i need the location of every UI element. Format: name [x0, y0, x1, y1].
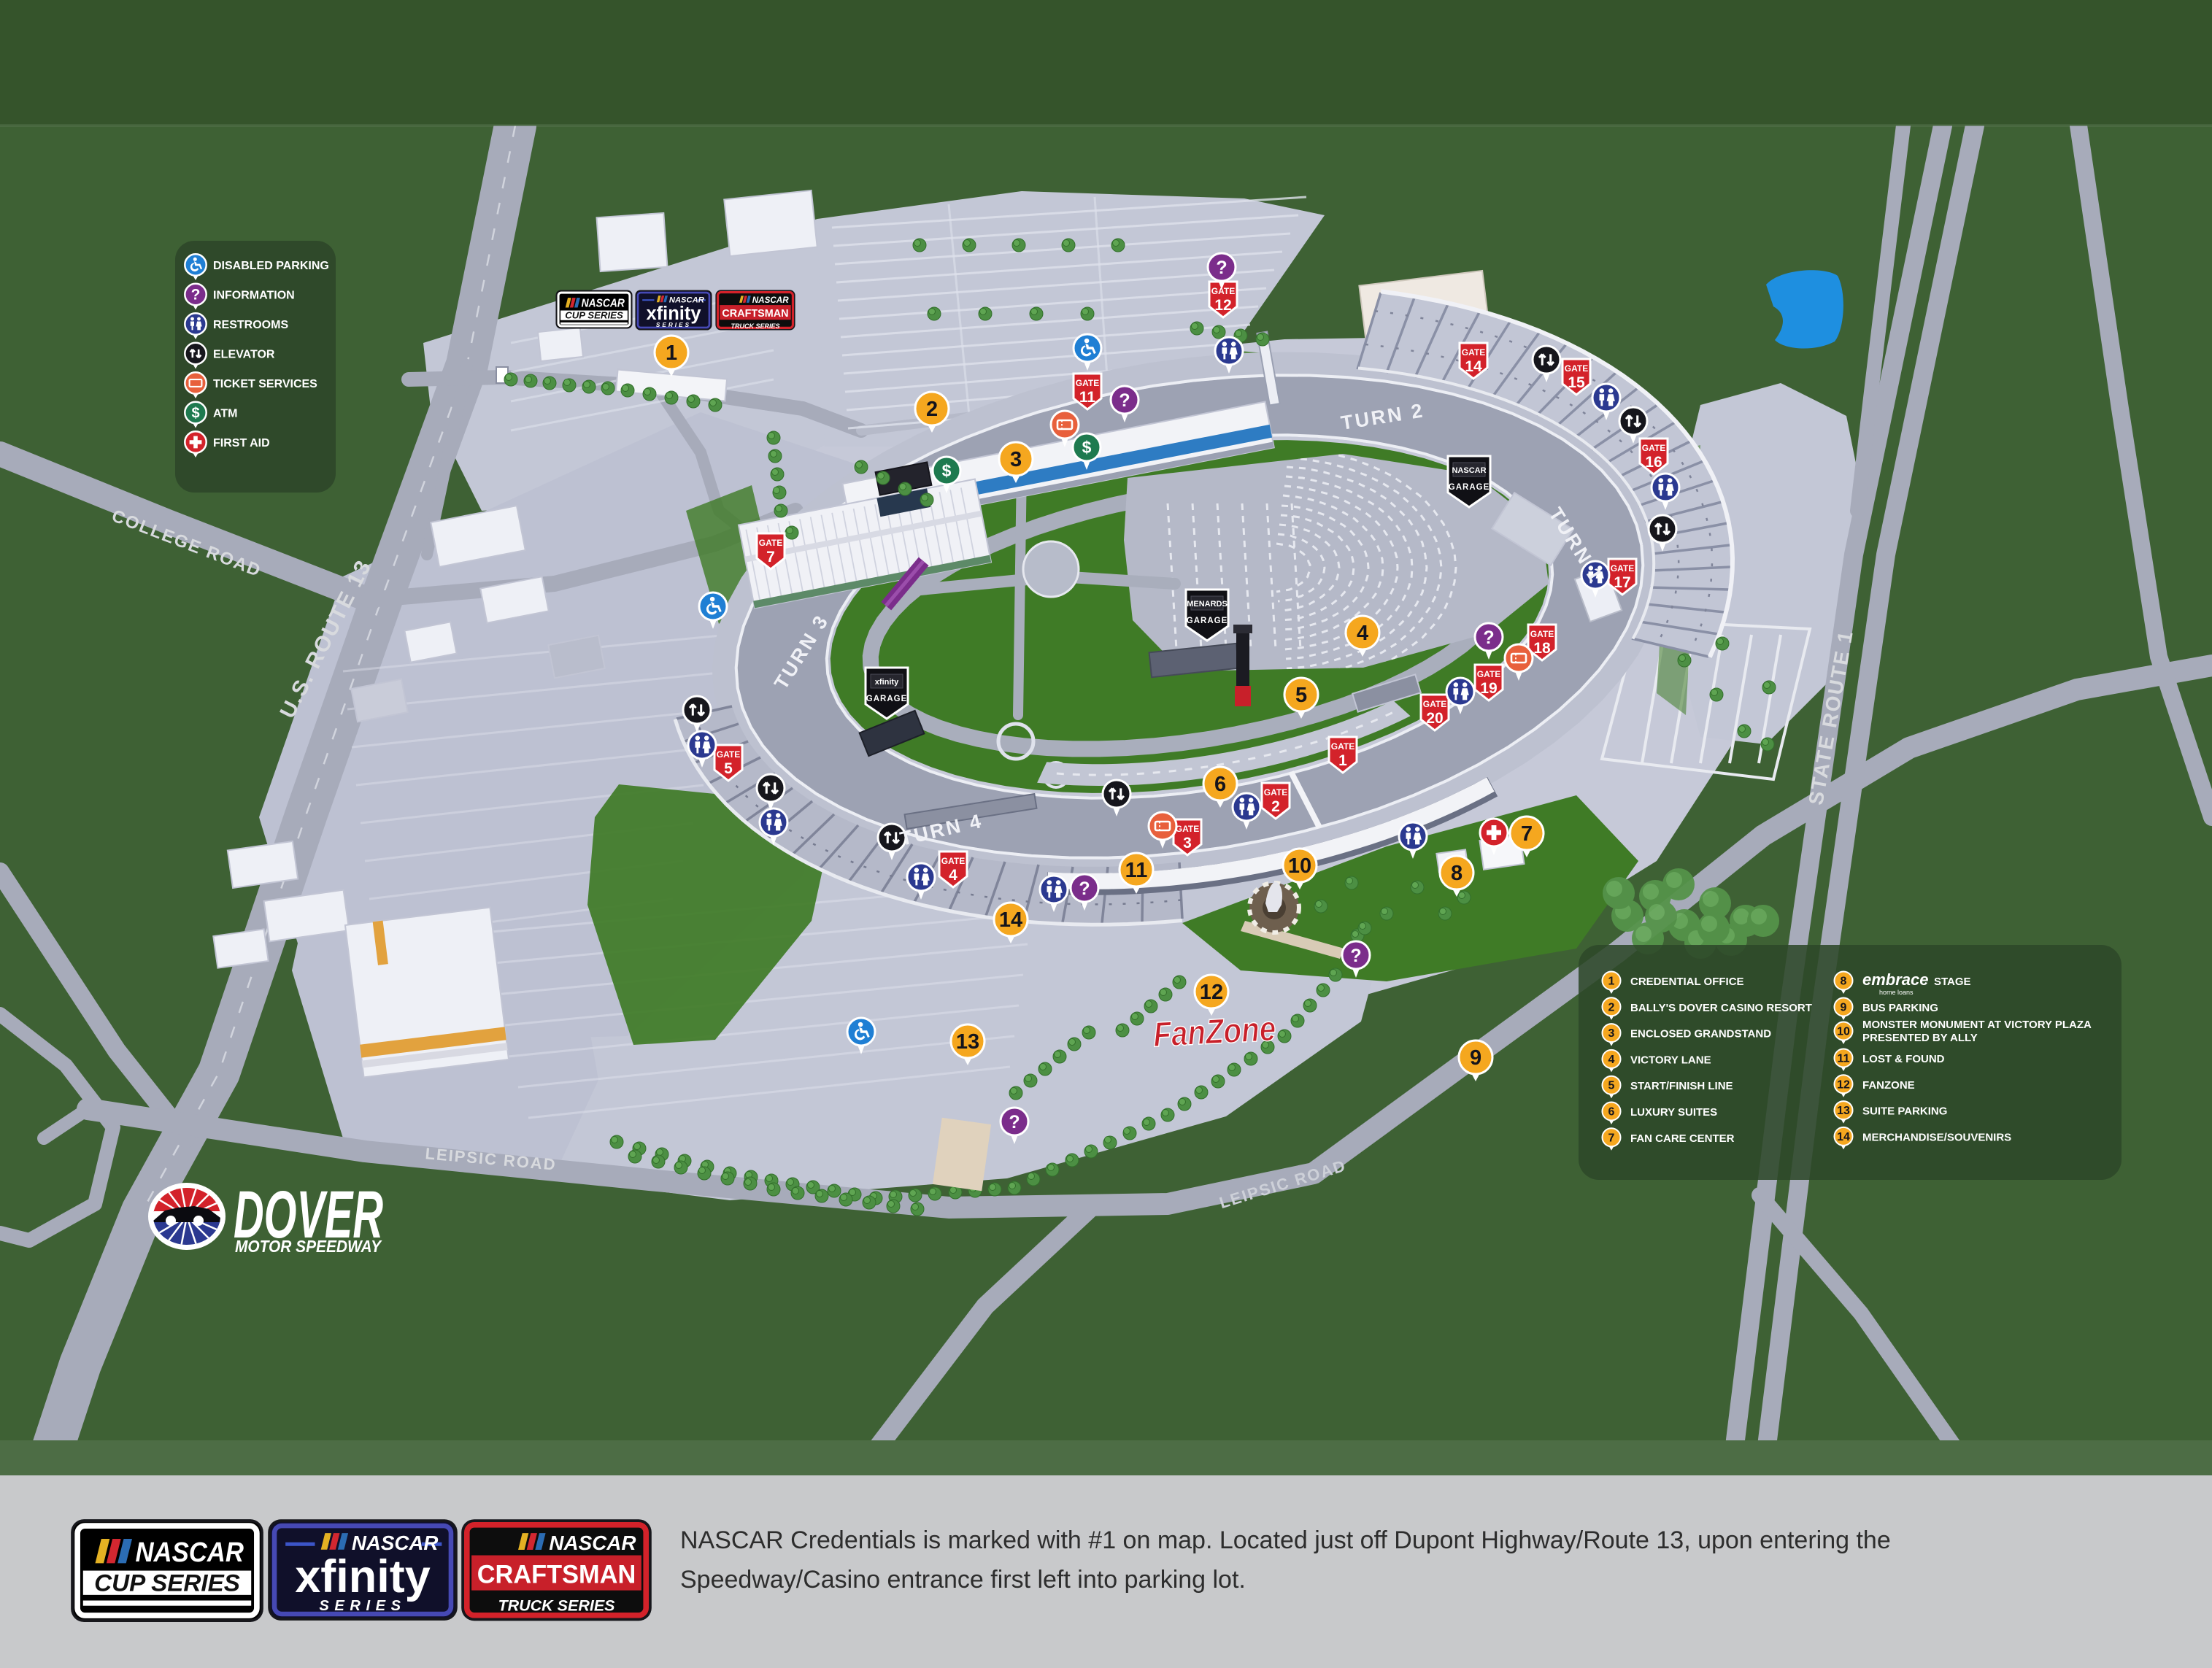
- svg-text:17: 17: [1614, 574, 1630, 591]
- svg-text:GATE: GATE: [1423, 699, 1446, 709]
- svg-text:NASCAR: NASCAR: [1452, 466, 1486, 475]
- svg-text:6: 6: [1608, 1106, 1615, 1119]
- svg-text:10: 10: [1288, 854, 1311, 878]
- svg-text:TRUCK SERIES: TRUCK SERIES: [731, 323, 779, 330]
- svg-text:LOST & FOUND: LOST & FOUND: [1862, 1053, 1945, 1065]
- svg-text:GATE: GATE: [717, 749, 740, 760]
- svg-text:14: 14: [999, 908, 1022, 932]
- svg-text:MOTOR SPEEDWAY: MOTOR SPEEDWAY: [235, 1237, 382, 1256]
- svg-text:?: ?: [1483, 628, 1494, 648]
- svg-text:MENARDS: MENARDS: [1187, 600, 1228, 609]
- svg-text:6: 6: [1214, 773, 1226, 796]
- svg-text:GARAGE: GARAGE: [866, 695, 907, 703]
- svg-text:5: 5: [724, 760, 733, 777]
- svg-text:$: $: [1082, 438, 1092, 457]
- svg-text:11: 11: [1838, 1053, 1850, 1065]
- svg-text:11: 11: [1125, 859, 1148, 882]
- svg-text:GARAGE: GARAGE: [1449, 483, 1490, 492]
- svg-text:7: 7: [766, 549, 775, 565]
- svg-text:?: ?: [1079, 879, 1090, 899]
- svg-text:?: ?: [1350, 946, 1361, 966]
- svg-text:5: 5: [1295, 684, 1307, 707]
- svg-text:8: 8: [1451, 862, 1463, 885]
- svg-text:?: ?: [1119, 390, 1130, 411]
- svg-text:19: 19: [1480, 680, 1497, 697]
- svg-text:MONSTER MONUMENT AT VICTORY PL: MONSTER MONUMENT AT VICTORY PLAZA: [1862, 1019, 2092, 1031]
- svg-text:DISABLED PARKING: DISABLED PARKING: [213, 260, 329, 272]
- svg-text:STAGE: STAGE: [1934, 976, 1971, 988]
- svg-text:GATE: GATE: [1331, 741, 1354, 752]
- svg-text:1: 1: [666, 341, 677, 365]
- svg-text:8: 8: [1841, 976, 1847, 988]
- svg-text:12: 12: [1200, 981, 1223, 1004]
- svg-text:FANZONE: FANZONE: [1862, 1079, 1915, 1092]
- svg-text:3: 3: [1608, 1027, 1615, 1040]
- svg-text:?: ?: [1009, 1112, 1020, 1132]
- svg-text:home loans: home loans: [1879, 989, 1914, 996]
- svg-text:GATE: GATE: [1642, 443, 1665, 453]
- svg-text:11: 11: [1079, 389, 1096, 406]
- svg-text:START/FINISH LINE: START/FINISH LINE: [1630, 1080, 1733, 1092]
- svg-text:5: 5: [1608, 1080, 1615, 1092]
- svg-text:4: 4: [949, 867, 957, 884]
- svg-text:PRESENTED BY ALLY: PRESENTED BY ALLY: [1862, 1032, 1978, 1044]
- svg-text:NASCAR: NASCAR: [135, 1537, 244, 1568]
- svg-text:GARAGE: GARAGE: [1187, 617, 1228, 625]
- svg-text:12: 12: [1214, 297, 1231, 314]
- svg-text:$: $: [191, 406, 199, 422]
- svg-text:GATE: GATE: [1176, 824, 1199, 834]
- svg-text:2: 2: [926, 398, 938, 421]
- svg-text:1: 1: [1608, 976, 1615, 988]
- svg-text:9: 9: [1470, 1046, 1481, 1070]
- svg-text:ATM: ATM: [213, 408, 237, 420]
- svg-text:NASCAR: NASCAR: [752, 296, 789, 305]
- svg-text:20: 20: [1426, 710, 1443, 727]
- svg-text:NASCAR: NASCAR: [582, 297, 625, 309]
- svg-text:GATE: GATE: [1565, 363, 1588, 374]
- svg-text:?: ?: [1216, 258, 1227, 278]
- svg-text:xfinity: xfinity: [646, 304, 701, 324]
- svg-text:GATE: GATE: [1211, 286, 1235, 296]
- svg-text:GATE: GATE: [759, 538, 782, 548]
- svg-text:CREDENTIAL OFFICE: CREDENTIAL OFFICE: [1630, 976, 1744, 988]
- svg-text:FIRST AID: FIRST AID: [213, 437, 270, 449]
- svg-text:embrace: embrace: [1862, 970, 1929, 989]
- svg-text:18: 18: [1533, 640, 1551, 657]
- svg-text:7: 7: [1608, 1132, 1615, 1144]
- svg-text:9: 9: [1841, 1002, 1847, 1014]
- svg-text:7: 7: [1521, 822, 1533, 846]
- svg-text:10: 10: [1837, 1026, 1850, 1038]
- svg-text:GATE: GATE: [1264, 787, 1287, 798]
- svg-text:xfinity: xfinity: [875, 678, 899, 687]
- svg-text:ENCLOSED GRANDSTAND: ENCLOSED GRANDSTAND: [1630, 1028, 1771, 1040]
- svg-text:xfinity: xfinity: [295, 1551, 431, 1602]
- svg-text:GATE: GATE: [1076, 378, 1099, 388]
- svg-text:INFORMATION: INFORMATION: [213, 290, 295, 302]
- svg-text:GATE: GATE: [1530, 629, 1554, 639]
- svg-text:SUITE PARKING: SUITE PARKING: [1862, 1105, 1947, 1118]
- svg-text:BUS PARKING: BUS PARKING: [1862, 1002, 1938, 1014]
- svg-text:TICKET SERVICES: TICKET SERVICES: [213, 378, 317, 390]
- svg-text:CUP SERIES: CUP SERIES: [94, 1570, 240, 1596]
- svg-text:$: $: [942, 461, 952, 480]
- svg-text:GATE: GATE: [1462, 347, 1485, 358]
- svg-text:TRUCK SERIES: TRUCK SERIES: [498, 1596, 615, 1614]
- svg-text:FAN CARE CENTER: FAN CARE CENTER: [1630, 1132, 1735, 1145]
- svg-text:CUP SERIES: CUP SERIES: [565, 310, 623, 321]
- svg-text:?: ?: [191, 287, 201, 304]
- svg-text:VICTORY LANE: VICTORY LANE: [1630, 1054, 1711, 1066]
- svg-text:4: 4: [1608, 1054, 1615, 1066]
- svg-text:ELEVATOR: ELEVATOR: [213, 349, 275, 361]
- svg-text:Speedway/Casino entrance first: Speedway/Casino entrance first left into…: [680, 1566, 1246, 1594]
- svg-text:BALLY'S DOVER CASINO RESORT: BALLY'S DOVER CASINO RESORT: [1630, 1002, 1812, 1014]
- svg-text:SERIES: SERIES: [656, 322, 691, 328]
- svg-text:SERIES: SERIES: [319, 1598, 406, 1614]
- svg-text:RESTROOMS: RESTROOMS: [213, 319, 288, 331]
- svg-text:4: 4: [1357, 622, 1368, 645]
- svg-text:CRAFTSMAN: CRAFTSMAN: [722, 308, 788, 320]
- svg-text:14: 14: [1465, 358, 1482, 375]
- svg-text:NASCAR Credentials is marked w: NASCAR Credentials is marked with #1 on …: [680, 1526, 1891, 1554]
- svg-text:CRAFTSMAN: CRAFTSMAN: [477, 1559, 636, 1588]
- svg-text:3: 3: [1010, 448, 1022, 471]
- svg-text:2: 2: [1271, 798, 1280, 815]
- svg-text:GATE: GATE: [941, 856, 965, 866]
- svg-text:12: 12: [1837, 1078, 1850, 1091]
- svg-text:15: 15: [1568, 374, 1585, 391]
- svg-text:13: 13: [956, 1030, 979, 1054]
- svg-text:GATE: GATE: [1477, 669, 1500, 679]
- svg-text:1: 1: [1338, 752, 1347, 769]
- svg-text:GATE: GATE: [1611, 563, 1634, 574]
- svg-text:2: 2: [1608, 1001, 1615, 1013]
- svg-text:MERCHANDISE/SOUVENIRS: MERCHANDISE/SOUVENIRS: [1862, 1131, 2011, 1143]
- svg-text:LUXURY SUITES: LUXURY SUITES: [1630, 1106, 1717, 1119]
- svg-text:3: 3: [1183, 835, 1192, 852]
- svg-text:NASCAR: NASCAR: [549, 1532, 636, 1554]
- svg-text:14: 14: [1837, 1131, 1850, 1143]
- svg-text:FanZone: FanZone: [1152, 1010, 1277, 1055]
- svg-text:16: 16: [1645, 454, 1662, 471]
- svg-text:13: 13: [1837, 1105, 1850, 1117]
